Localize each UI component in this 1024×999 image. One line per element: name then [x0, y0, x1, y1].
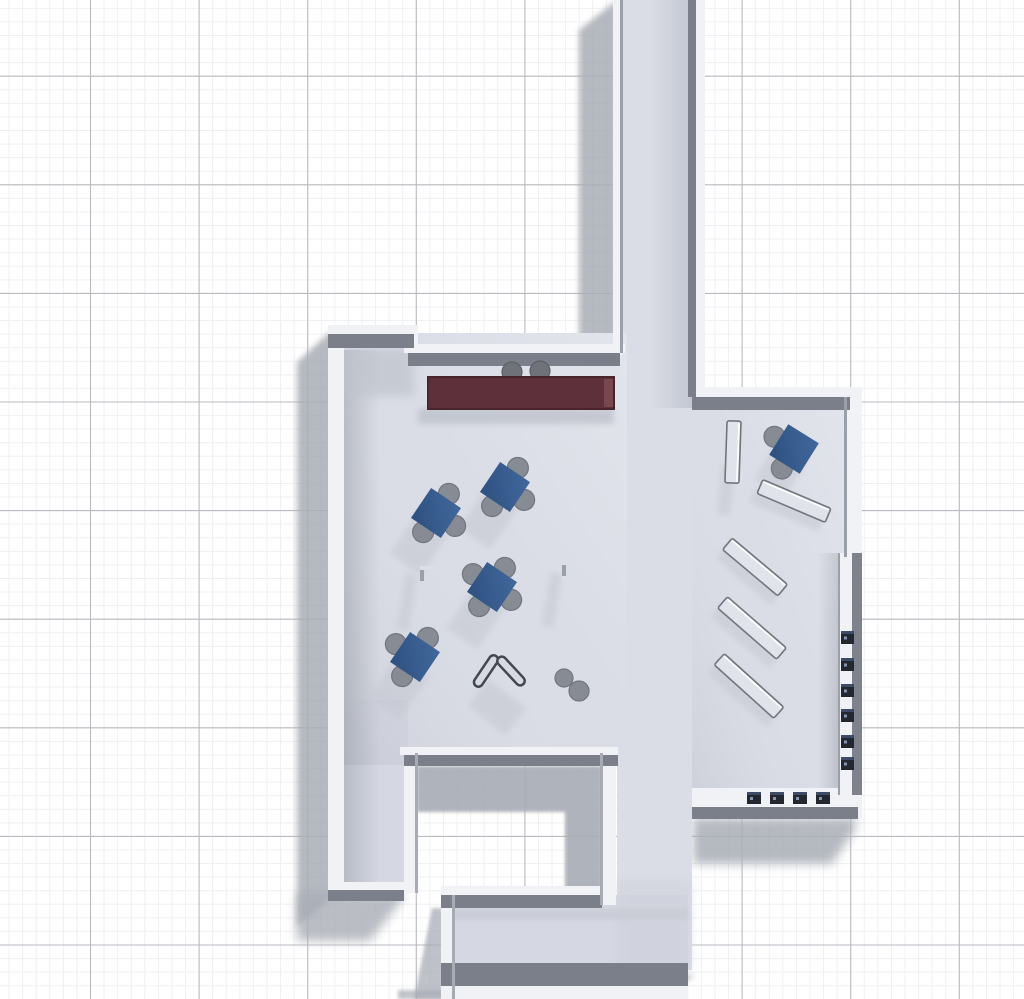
wall-face	[692, 807, 858, 819]
floor-shade	[650, 0, 692, 408]
wall	[400, 747, 618, 755]
wall-device[interactable]	[841, 631, 854, 644]
display-shelf[interactable]	[725, 421, 741, 483]
wall-device[interactable]	[841, 658, 854, 671]
wall-device[interactable]	[770, 792, 784, 804]
wall-cast-shadow	[693, 818, 856, 864]
wall	[408, 344, 625, 353]
wall	[695, 387, 858, 397]
wall	[328, 325, 344, 899]
bar-counter[interactable]	[428, 377, 614, 409]
wall	[695, 0, 705, 392]
stool[interactable]	[569, 681, 589, 701]
wall-face	[452, 895, 455, 999]
wall-face	[600, 753, 603, 905]
wall-face	[404, 755, 618, 766]
wall-face	[415, 753, 418, 893]
wall-device[interactable]	[747, 792, 761, 804]
wall-face	[620, 0, 623, 353]
wall-face	[692, 397, 850, 410]
wall-device[interactable]	[816, 792, 830, 804]
wall	[441, 886, 602, 895]
wall-device[interactable]	[841, 735, 854, 748]
wall-face	[441, 963, 688, 986]
wall-device[interactable]	[841, 709, 854, 722]
wall-face	[688, 0, 696, 397]
floor-shade	[617, 880, 692, 970]
wall-face	[328, 890, 404, 901]
wall-cast-shadow	[579, 0, 617, 382]
wall-device[interactable]	[841, 684, 854, 697]
wall-face	[844, 397, 847, 557]
floorplan-3d-viewport[interactable]	[0, 0, 1024, 999]
wall-device[interactable]	[841, 757, 854, 770]
wall-device[interactable]	[793, 792, 807, 804]
wall-face	[441, 895, 602, 908]
wall	[328, 882, 404, 890]
floorplan-scene	[0, 0, 1024, 999]
wall-face	[838, 553, 840, 795]
floor-shade	[418, 408, 614, 424]
floor	[617, 333, 692, 970]
stool[interactable]	[555, 669, 573, 687]
wall	[443, 986, 688, 999]
wall-face	[328, 334, 414, 348]
